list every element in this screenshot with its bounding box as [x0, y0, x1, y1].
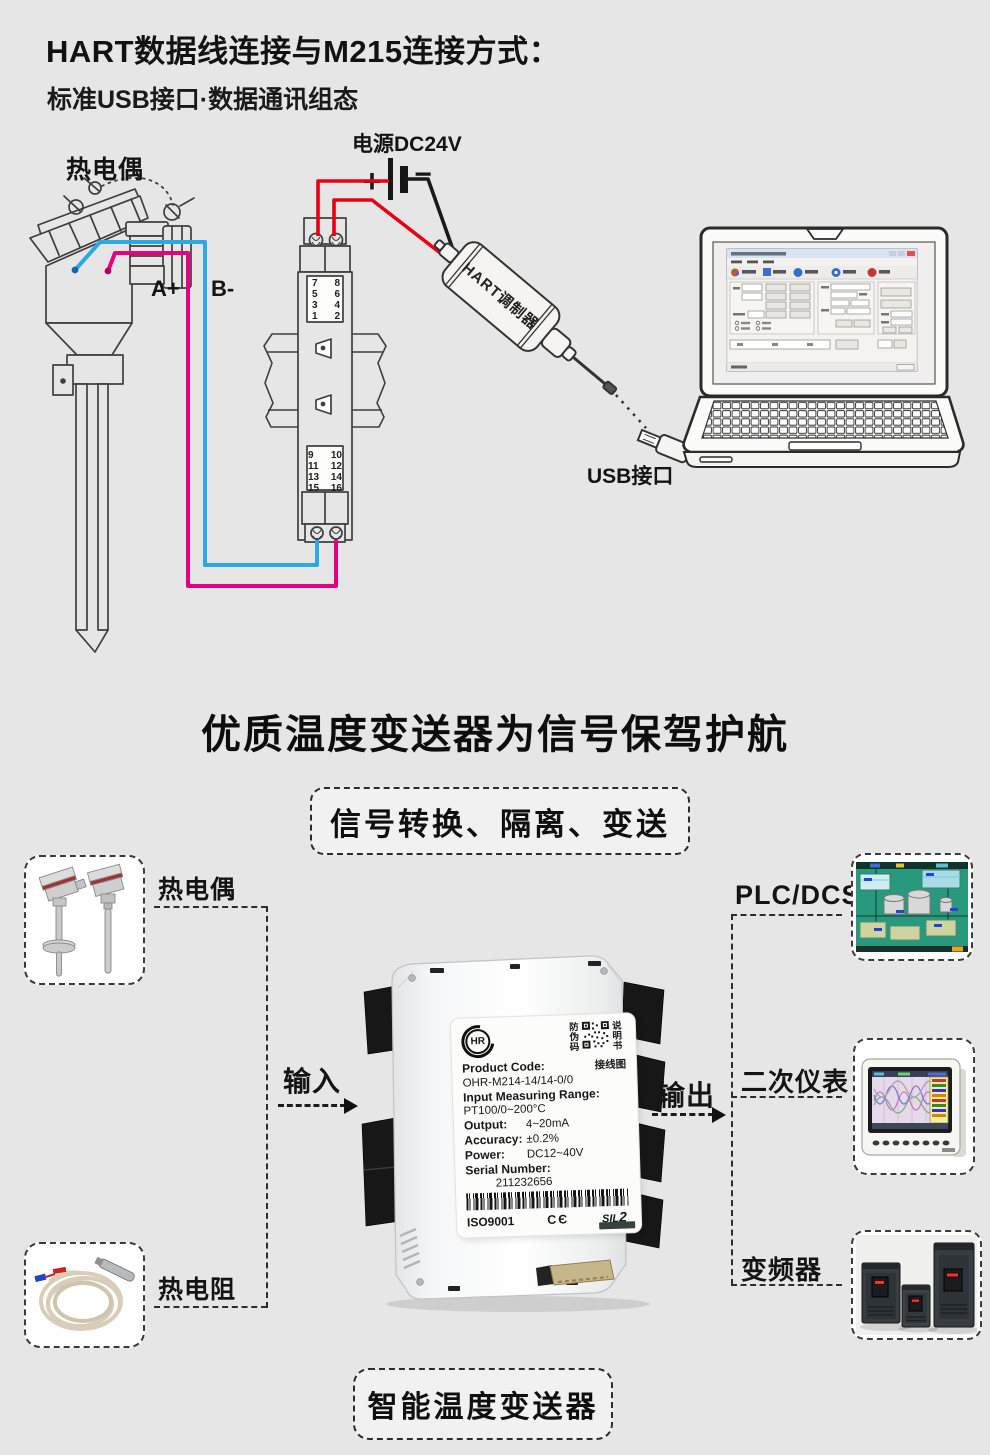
terminal-number: 9 — [308, 450, 325, 461]
input-label: 输入 — [283, 1060, 341, 1100]
product-name-box: 智能温度变送器 — [353, 1368, 613, 1440]
wire-a-plus-label: A+ — [151, 276, 180, 302]
transmitter-photo: HR 防伪码 — [358, 948, 673, 1320]
power-field-value: DC12~40V — [527, 1147, 584, 1161]
product-name-label: 智能温度变送器 — [368, 1382, 599, 1426]
dest-plc-label: PLC/DCS — [735, 880, 861, 911]
barcode-icon — [466, 1188, 628, 1210]
manual-label: 说明书 — [611, 1022, 624, 1052]
bottom-terminal-numbers: 9 11 13 15 10 12 14 16 — [308, 450, 342, 494]
output-field-value: 4~20mA — [526, 1117, 570, 1130]
dashed-connector — [731, 914, 733, 1285]
terminal-number: 15 — [308, 483, 325, 494]
meter-photo-box — [853, 1038, 975, 1175]
output-arrowhead-icon — [712, 1107, 726, 1123]
terminal-number: 11 — [308, 461, 325, 472]
usb-port-label: USB接口 — [587, 460, 673, 490]
vfd-illustration — [856, 1235, 977, 1335]
recorder-illustration — [858, 1043, 970, 1170]
thermocouple-product-illustration — [29, 860, 140, 980]
sil-badge-icon — [599, 1221, 635, 1229]
thermocouple-photo-box — [24, 855, 145, 985]
dashed-connector — [731, 914, 842, 916]
input-arrow — [278, 1104, 346, 1107]
wiring-map-label: 接线图 — [594, 1056, 626, 1072]
terminal-number: 14 — [325, 472, 342, 483]
top-terminal-numbers: 7 5 3 1 8 6 4 2 — [309, 278, 343, 322]
hart-modem: HART调制器 — [419, 222, 631, 412]
feature-box: 信号转换、隔离、变送 — [310, 787, 690, 855]
brand-logo: HR — [461, 1025, 495, 1059]
vfd-photo-box — [851, 1230, 982, 1340]
input-arrowhead-icon — [344, 1098, 358, 1114]
terminal-number: 16 — [325, 483, 342, 494]
section-headline: 优质温度变送器为信号保驾护航 — [0, 702, 990, 760]
thermocouple-label: 热电偶 — [66, 150, 144, 186]
power-field-label: Power: — [465, 1147, 527, 1163]
terminal-number: 5 — [312, 289, 326, 300]
product-label-card: HR 防伪码 — [451, 1013, 642, 1238]
serial-value: 211232656 — [496, 1176, 553, 1190]
qr-code-icon — [582, 1021, 610, 1049]
rtd-product-illustration — [29, 1247, 140, 1343]
feature-box-label: 信号转换、隔离、变送 — [330, 799, 670, 844]
dest-vfd-label: 变频器 — [741, 1250, 822, 1287]
rtd-photo-box — [24, 1242, 145, 1348]
source-rtd-label: 热电阻 — [158, 1270, 236, 1306]
promo-image: HART数据线连接与M215连接方式： 标准USB接口·数据通讯组态 — [0, 0, 990, 1455]
wiring-diagram: + − HART调制器 — [0, 0, 990, 690]
terminal-number: 10 — [325, 450, 342, 461]
terminal-number: 3 — [312, 300, 326, 311]
output-label: 输出 — [657, 1074, 715, 1114]
power-supply-label: 电源DC24V — [352, 128, 462, 158]
terminal-number: 6 — [326, 289, 340, 300]
dashed-connector — [266, 906, 268, 1308]
ce-mark: CЄ — [547, 1212, 569, 1227]
terminal-number: 7 — [312, 278, 326, 289]
laptop-touchpad — [789, 442, 861, 450]
terminal-number: 4 — [326, 300, 340, 311]
iso-certification: ISO9001 — [467, 1214, 515, 1229]
terminal-number: 8 — [326, 278, 340, 289]
serial-label: Serial Number: — [465, 1161, 551, 1178]
accuracy-field-label: Accuracy: — [464, 1132, 526, 1148]
terminal-number: 2 — [326, 311, 340, 322]
laptop-keyboard — [702, 401, 948, 438]
terminal-number: 13 — [308, 472, 325, 483]
dashed-connector — [154, 1306, 267, 1308]
sil-rating: SIL2 — [602, 1209, 627, 1226]
source-thermocouple-label: 热电偶 — [158, 870, 236, 906]
dashed-connector — [154, 906, 267, 908]
scada-screen-illustration — [856, 858, 968, 956]
accuracy-field-value: ±0.2% — [526, 1133, 559, 1146]
config-software-window — [727, 249, 917, 371]
output-arrow — [652, 1113, 714, 1116]
terminal-number: 12 — [325, 461, 342, 472]
product-code-label: Product Code: — [462, 1059, 545, 1076]
dest-meter-label: 二次仪表 — [741, 1062, 849, 1099]
usb-plug — [616, 395, 692, 463]
output-field-label: Output: — [464, 1117, 526, 1133]
laptop — [684, 228, 964, 467]
thermocouple-illustration — [30, 178, 194, 652]
plc-photo-box — [851, 853, 973, 961]
terminal-number: 1 — [312, 311, 326, 322]
anti-counterfeit-label: 防伪码 — [568, 1023, 581, 1053]
wire-b-minus-label: B- — [211, 276, 234, 302]
